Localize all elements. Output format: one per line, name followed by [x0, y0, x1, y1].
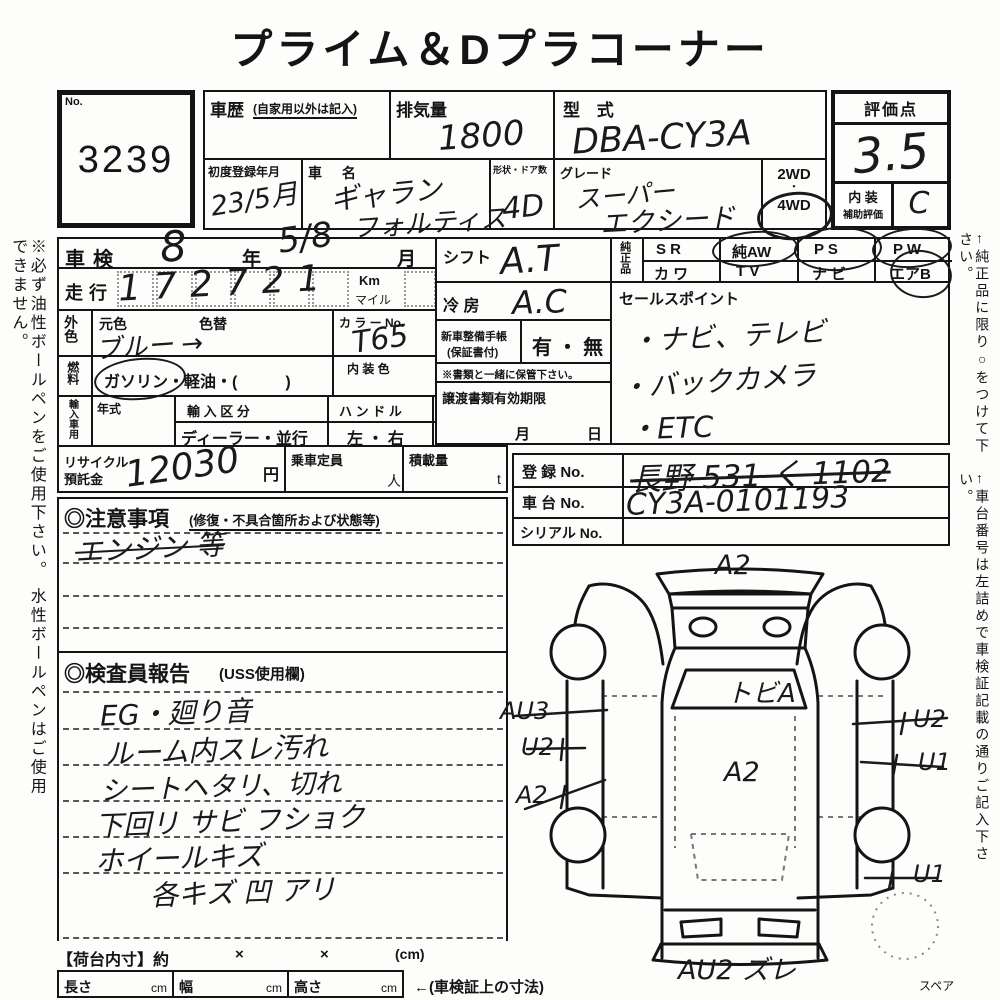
body-doors-label: 形状・ドア数	[493, 163, 547, 176]
serial-no-label: シリアル No.	[520, 523, 602, 543]
wheels	[551, 625, 909, 862]
damage-label-left-2: U2	[521, 733, 554, 761]
grade-line2: エクシード	[599, 195, 736, 241]
displacement-label: 排気量	[396, 96, 447, 121]
inspector-heading: ◎検査員報告	[64, 658, 190, 688]
damage-label-windshield: トビA	[726, 673, 796, 710]
import-row: 輸入車用 年式 輸 入 区 分 ディーラー・並行 ハ ン ド ル 左 ・ 右	[57, 395, 434, 447]
service-book-label-1: 新車整備手帳	[441, 328, 507, 344]
page-title: プライム＆Dプラコーナー	[0, 16, 1000, 77]
divider	[520, 321, 522, 362]
import-label: 輸入車用	[66, 399, 78, 439]
load-unit: t	[497, 471, 501, 487]
divider	[327, 421, 436, 423]
mileage-label: 走行	[65, 279, 113, 305]
history-note: (自家用以外は記入)	[253, 100, 357, 119]
transfer-label: 譲渡書類有効期限	[442, 388, 546, 407]
recycle-label-2: 預託金	[64, 469, 103, 488]
width-unit: cm	[266, 981, 282, 995]
right-margin-note-chassis: ←車台番号は左詰めで車検証記載の通りご記入下さい。	[958, 472, 990, 882]
damage-label-left-3: A2	[516, 781, 548, 809]
keep-note: ※書類と一緒に保管下さい。	[442, 367, 579, 382]
shaken-month-value: 5/8	[275, 214, 335, 261]
height-cell: 高さ cm	[287, 970, 404, 998]
bed-dims-x2: ×	[320, 946, 329, 963]
damage-label-right-2: U1	[918, 748, 951, 776]
width-cell: 幅 cm	[172, 970, 289, 998]
ruled-line	[63, 627, 503, 629]
sales-point-line: ・ETC	[627, 404, 714, 449]
damage-label-left-1: AU3	[500, 697, 549, 725]
damage-label-right-1: U2	[913, 705, 946, 733]
interior-label-1: 内 装	[835, 187, 891, 206]
mileage-unit-mile: マイル	[355, 291, 391, 308]
divider	[332, 357, 334, 395]
mileage-unit-km: Km	[359, 273, 380, 288]
import-handle-label: ハ ン ド ル	[339, 401, 402, 420]
length-label: 長さ	[64, 977, 92, 997]
height-label: 高さ	[294, 977, 322, 997]
spare-tire-label: スペア	[919, 977, 954, 994]
shift-label: シフト	[443, 244, 491, 268]
displacement-value: 1800	[437, 113, 526, 159]
damage-label-roof: A2	[724, 757, 760, 788]
divider	[91, 311, 93, 355]
keep-note-strip: ※書類と一緒に保管下さい。	[435, 362, 612, 383]
lot-box: No. 3239	[57, 90, 195, 228]
caution-box: ◎注意事項 (修復・不具合箇所および状態等)	[57, 497, 508, 653]
transfer-month: 月	[515, 423, 530, 444]
divider	[174, 421, 327, 423]
body-doors-value: 4D	[500, 188, 546, 227]
score-label: 評価点	[835, 94, 947, 125]
auction-sheet: プライム＆Dプラコーナー ※必ず油性ボールペンをご使用下さい。 水性ボールペンは…	[0, 0, 1000, 1000]
caution-note: エンジン 等	[74, 523, 225, 571]
interior-label-2: 補助評価	[835, 206, 891, 221]
genuine-label: 純正品	[618, 241, 631, 274]
fuel-label: 燃料	[65, 361, 79, 385]
mileage-digit-box	[404, 271, 436, 307]
load-label: 積載量	[409, 450, 448, 469]
height-unit: cm	[381, 981, 397, 995]
ruled-line	[63, 937, 503, 939]
capacity-unit: 人	[387, 471, 401, 491]
lot-number: 3239	[62, 139, 190, 182]
divider	[284, 447, 286, 491]
shift-value: A.T	[499, 238, 560, 283]
genuine-sr: S R	[656, 241, 681, 258]
service-book-label-2: (保証書付)	[447, 344, 498, 360]
sales-point-label: セールスポイント	[619, 288, 739, 309]
reg-no-label: 登 録 No.	[522, 461, 585, 482]
transfer-cell: 譲渡書類有効期限 月 日	[435, 381, 612, 445]
capacity-label: 乗車定員	[291, 450, 343, 469]
divider	[91, 357, 93, 395]
transfer-day: 日	[587, 423, 602, 444]
damage-label-right-3: U1	[913, 860, 946, 888]
score-value: 3.5	[833, 121, 949, 187]
interior-score-row: 内 装 補助評価 C	[835, 181, 947, 226]
spare-tire-circle	[872, 893, 938, 959]
history-label: 車歴	[210, 96, 244, 121]
length-cell: 長さ cm	[57, 970, 174, 998]
divider	[622, 455, 624, 544]
recycle-unit: 円	[263, 461, 279, 485]
diagram-dashed-seams	[602, 696, 883, 880]
ac-value: A.C	[511, 282, 567, 322]
chassis-no-label: 車 台 No.	[522, 492, 585, 513]
bed-dims-x1: ×	[235, 946, 244, 963]
model-code-label: 型 式	[563, 96, 620, 121]
service-book-cell: 新車整備手帳 (保証書付) 有 ・ 無	[435, 319, 612, 364]
damage-label-rear: AU2 ズレ	[678, 948, 796, 987]
divider	[91, 397, 93, 445]
length-unit: cm	[151, 981, 167, 995]
bed-dims-label: 【荷台内寸】約	[57, 946, 169, 970]
import-year-label: 年式	[97, 400, 121, 417]
history-cell: 車歴 (自家用以外は記入)	[203, 90, 391, 160]
interior-score-value: C	[891, 186, 947, 221]
dims-note: ←(車検証上の寸法)	[414, 976, 544, 997]
bed-dims-cm: (cm)	[395, 946, 425, 962]
drive-separator: ・	[763, 183, 825, 191]
service-book-options: 有 ・ 無	[532, 331, 603, 360]
ruled-line	[63, 595, 503, 597]
divider	[332, 311, 334, 355]
lot-label: No.	[65, 96, 83, 108]
width-label: 幅	[179, 977, 193, 997]
interior-color-label: 内 装 色	[347, 360, 390, 377]
inspector-line: 各キズ 凹 アリ	[149, 868, 336, 914]
color-repaint-label: 色替	[199, 314, 227, 334]
score-box: 評価点 3.5 内 装 補助評価 C	[831, 90, 951, 230]
damage-label-front: A2	[715, 550, 751, 581]
interior-score-label-cell: 内 装 補助評価	[835, 184, 894, 226]
import-division-label: 輸 入 区 分	[187, 401, 250, 420]
color-label: 外色	[63, 315, 79, 343]
right-margin-note-genuine: ←純正品に限り○をつけて下さい。	[958, 232, 990, 467]
ac-label: 冷 房	[443, 292, 479, 316]
inspector-subheading: (USS使用欄)	[219, 663, 305, 684]
left-margin-note: ※必ず油性ボールペンをご使用下さい。 水性ボールペンはご使用できません。	[8, 238, 45, 798]
divider	[402, 447, 404, 491]
